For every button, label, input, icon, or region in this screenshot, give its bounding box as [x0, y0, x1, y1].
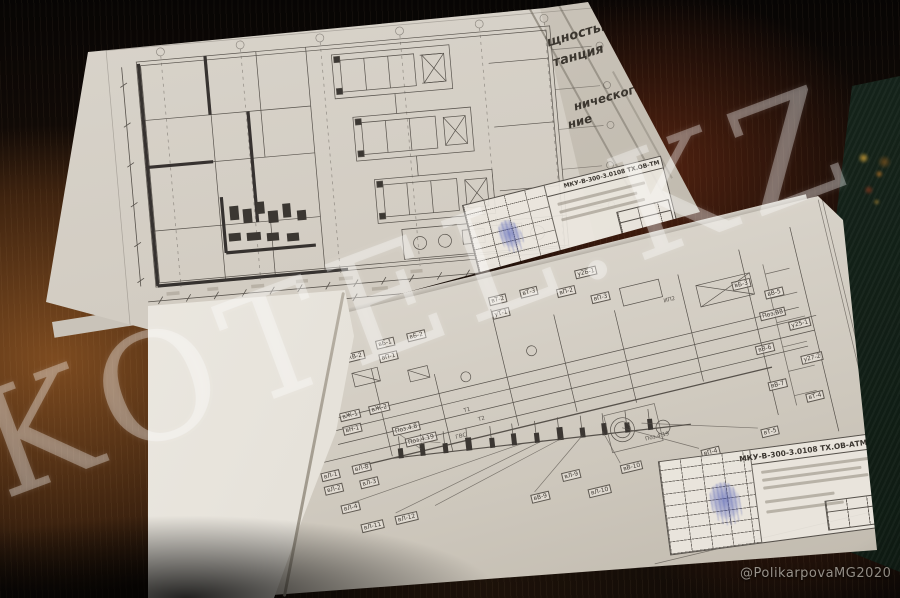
- table-shadow: [0, 470, 620, 598]
- photo-scene: щностью танция нического ние: [0, 0, 900, 598]
